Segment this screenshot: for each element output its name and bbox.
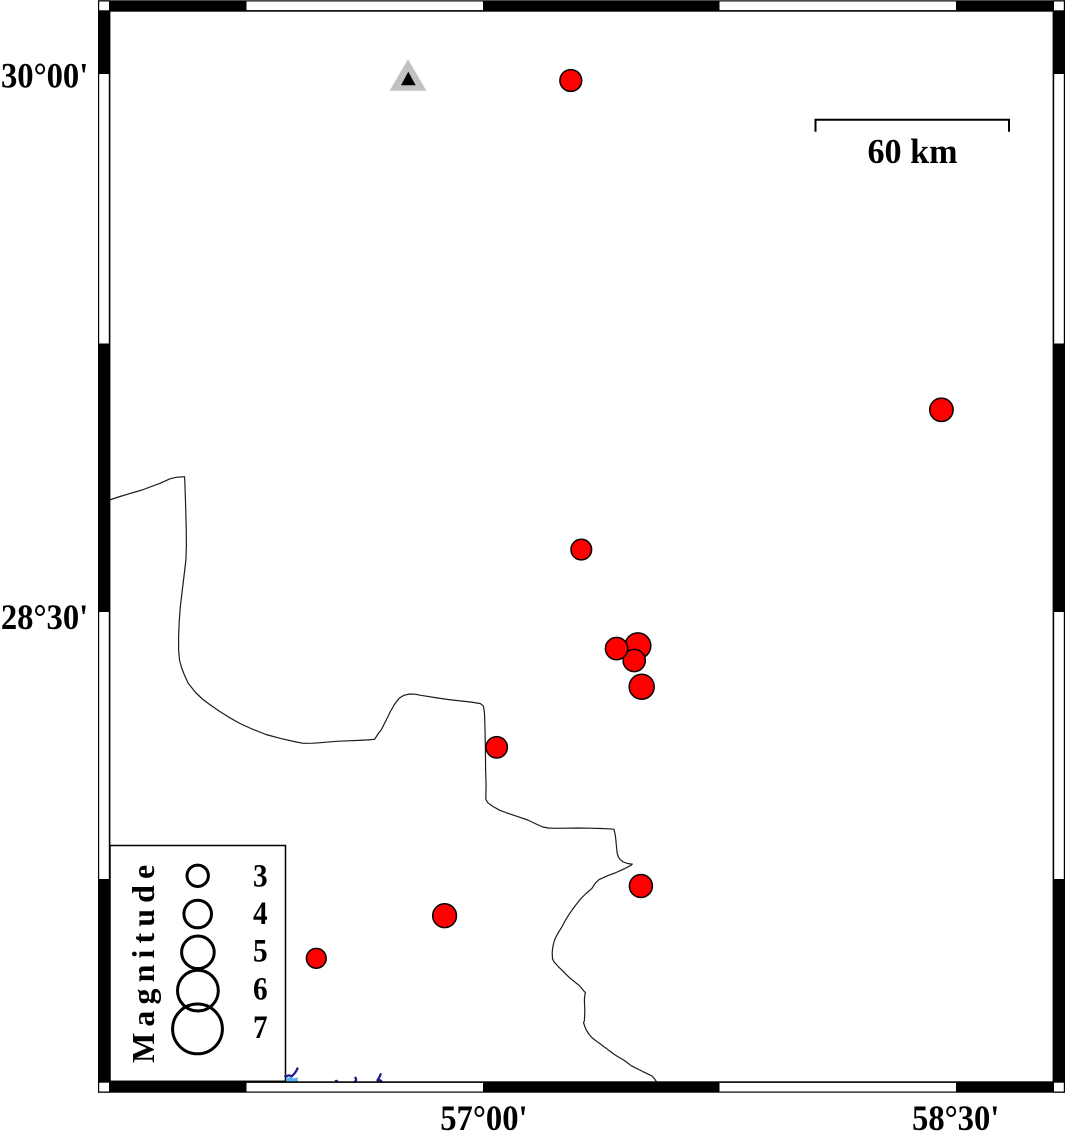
svg-text:Magnitude: Magnitude	[125, 859, 161, 1063]
svg-text:28°30': 28°30'	[1, 597, 88, 637]
svg-text:30°00': 30°00'	[1, 56, 88, 96]
svg-text:6: 6	[253, 970, 268, 1007]
svg-text:60 km: 60 km	[867, 133, 957, 171]
svg-text:7: 7	[253, 1009, 268, 1046]
svg-text:4: 4	[253, 895, 268, 932]
svg-text:57°00': 57°00'	[440, 1098, 527, 1131]
svg-text:58°30': 58°30'	[912, 1098, 999, 1131]
svg-text:5: 5	[253, 932, 268, 969]
svg-text:3: 3	[253, 857, 268, 894]
